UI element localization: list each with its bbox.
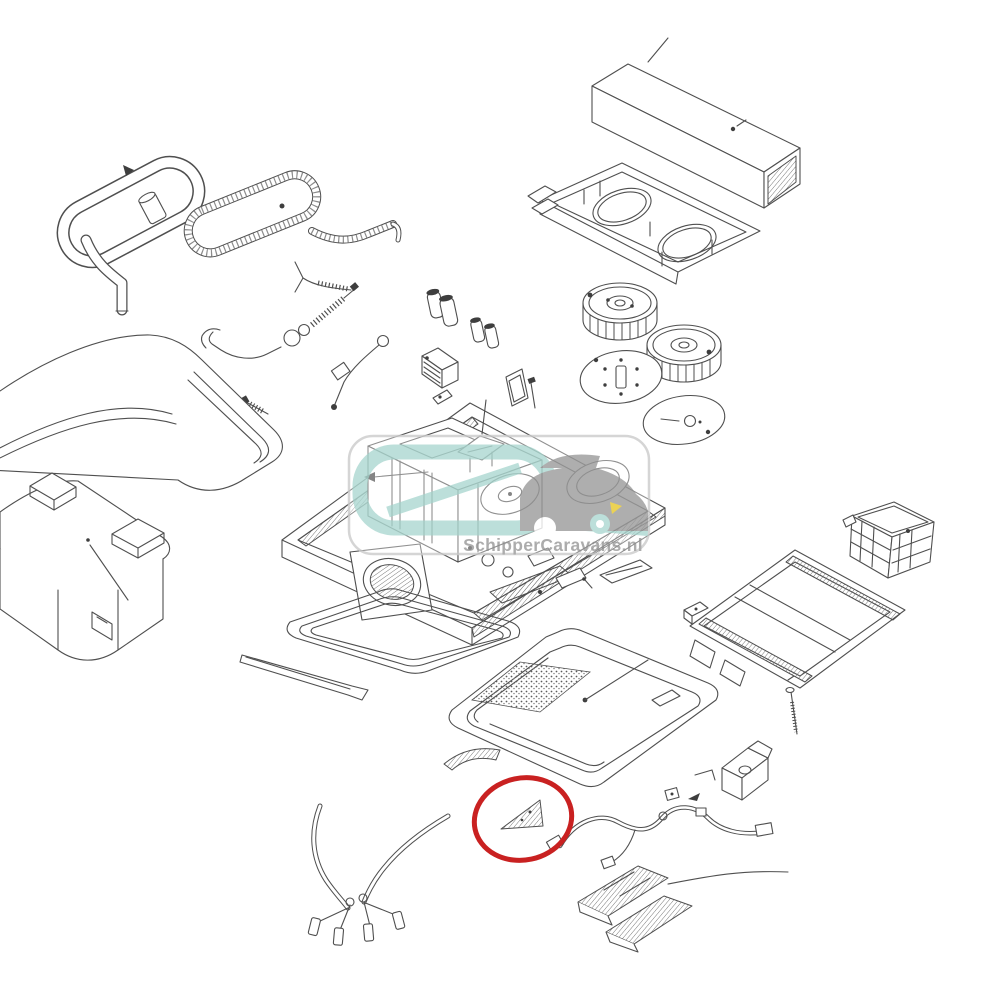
cover-plate-small [582, 560, 652, 588]
mounting-bracket [722, 741, 772, 800]
leader-hook [202, 329, 221, 348]
air-distributor-box [449, 629, 718, 787]
relay-module [422, 348, 458, 388]
corner-vane [501, 800, 543, 829]
logo-wheel-hub [596, 520, 604, 528]
watermark-text: SchipperCaravans.nl [463, 535, 643, 555]
parts-diagram-page: SchipperCaravans.nl [0, 0, 1000, 1000]
cover-plate [506, 369, 536, 408]
fan-disc-2 [640, 391, 728, 450]
mounting-frame [690, 550, 905, 688]
power-cable [308, 806, 448, 945]
seal-strip [240, 655, 368, 700]
roof-cover-base [0, 473, 170, 660]
roof-cover-top [0, 335, 282, 490]
condensate-hose [182, 168, 399, 259]
filter-basket [843, 502, 934, 578]
leader-arrow [688, 793, 700, 801]
capacitor-set [426, 288, 500, 349]
exploded-parts-diagram: SchipperCaravans.nl [0, 0, 1000, 1000]
blower-wheel-1 [583, 283, 657, 340]
leader-line [668, 872, 788, 884]
trim-strip [444, 749, 500, 770]
watermark: SchipperCaravans.nl [349, 436, 649, 555]
mounting-clip [433, 390, 452, 404]
